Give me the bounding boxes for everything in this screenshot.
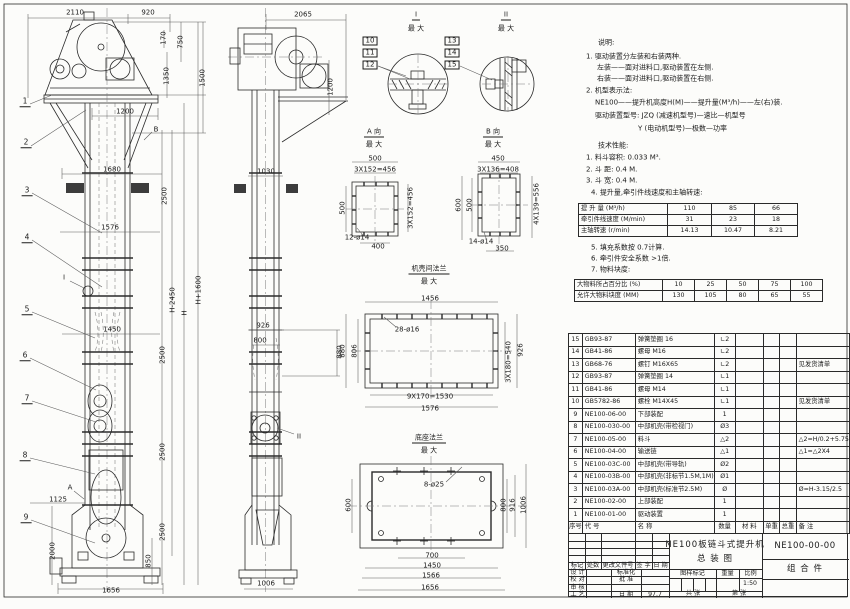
table-cell xyxy=(763,371,779,384)
table-cell xyxy=(796,409,849,422)
table-cell xyxy=(780,434,796,447)
table-cell: 提 升 量 (M³/h) xyxy=(579,204,668,215)
table-cell: Ø xyxy=(714,484,735,497)
table-cell xyxy=(735,371,763,384)
table-cell: Ø3 xyxy=(714,421,735,434)
dim-label: 806 xyxy=(352,344,359,357)
table-cell xyxy=(780,496,796,509)
dim-label: 1456 xyxy=(421,296,439,303)
table-row: 13GB68-76螺钉 M16X65∟2见发货清单 xyxy=(569,359,850,372)
table-cell: 8.21 xyxy=(755,226,798,237)
title-block-cell: 校 对 xyxy=(570,577,584,583)
note-line: 2. 机型表示法: xyxy=(586,88,632,95)
dim-label: 3X152=456 xyxy=(354,167,396,174)
table-cell xyxy=(735,509,763,522)
title-block-line xyxy=(762,579,849,580)
table-cell xyxy=(780,346,796,359)
title-block-cell: 处数 xyxy=(587,562,599,568)
table-cell: NE100-03B-00 xyxy=(582,471,635,484)
balloon-2: 2 xyxy=(21,138,32,148)
balloon-11: 11 xyxy=(363,49,378,58)
dim-label: 1450 xyxy=(103,327,121,334)
note-line: 1. 料斗容积: 0.033 M³. xyxy=(586,155,661,162)
table-cell: NE100-01-00 xyxy=(582,509,635,522)
table-cell: 主轴转速 (r/min) xyxy=(579,226,668,237)
table-cell: 80 xyxy=(727,291,759,302)
dim-label: 1200 xyxy=(328,78,335,96)
title-block-line xyxy=(669,534,670,598)
table-cell xyxy=(780,334,796,347)
table-row: 9NE100-06-00下部装配1 xyxy=(569,409,850,422)
table-cell xyxy=(780,471,796,484)
dim-label: 14-ø14 xyxy=(469,239,494,246)
detail-I xyxy=(378,54,448,114)
dim-label: 1030 xyxy=(257,169,275,176)
table-cell: 8 xyxy=(569,421,583,434)
table-cell xyxy=(763,484,779,497)
dim-label: 1200 xyxy=(116,109,134,116)
dim-label: 926 xyxy=(256,323,269,330)
dim-label: 1656 xyxy=(421,585,439,592)
table-cell xyxy=(735,384,763,397)
table-cell: 单重 xyxy=(763,521,779,534)
table-row: 14GB41-86螺母 M16∟2 xyxy=(569,346,850,359)
table-cell: 螺母 M14 xyxy=(635,384,714,397)
title-block-line xyxy=(611,569,612,598)
table-cell: Ø=H-3.15/2.5 xyxy=(796,484,849,497)
table-row: 15GB93-87弹簧垫圈 16∟2 xyxy=(569,334,850,347)
table-row: 主轴转速 (r/min)14.1310.478.21 xyxy=(579,226,798,237)
dim-label: 850 xyxy=(146,554,153,567)
balloon-4: 4 xyxy=(22,233,33,243)
table-cell: 驱动装置 xyxy=(635,509,714,522)
table-cell xyxy=(763,434,779,447)
lump-size-table: 大物料所占百分比 (%)10255075100允许大物料块度 (MM)13010… xyxy=(574,279,823,302)
dim-label: 450 xyxy=(491,156,504,163)
table-cell: 65 xyxy=(759,291,791,302)
table-cell: NE100-04-00 xyxy=(582,446,635,459)
dim-label: 12-ø14 xyxy=(345,235,370,242)
note-line: 右装——面对进料口,驱动装置在右侧. xyxy=(597,76,713,83)
table-cell: 输送链 xyxy=(635,446,714,459)
balloon-15: 15 xyxy=(445,61,460,70)
table-row: 4NE100-03B-00中部机壳(非标节1.5M,1M)Ø1 xyxy=(569,471,850,484)
table-cell: 中部机壳(带导轨) xyxy=(635,459,714,472)
part-type: 组 合 件 xyxy=(787,565,823,574)
table-row: 8NE100-030-00中部机壳(带检视门)Ø3 xyxy=(569,421,850,434)
table-cell: 11 xyxy=(569,384,583,397)
dim-label: 750 xyxy=(178,35,185,48)
table-cell xyxy=(763,471,779,484)
dim-label: 机壳间法兰 xyxy=(409,266,450,275)
table-cell xyxy=(763,446,779,459)
table-cell: GB41-86 xyxy=(582,346,635,359)
dim-label: H xyxy=(182,310,189,315)
table-cell xyxy=(796,421,849,434)
dim-label: 916 xyxy=(510,498,517,511)
table-cell: 14 xyxy=(569,346,583,359)
table-cell: 18 xyxy=(755,215,798,226)
table-cell: 1 xyxy=(714,496,735,509)
table-cell xyxy=(735,421,763,434)
table-cell xyxy=(763,496,779,509)
note-line: 3. 斗 宽: 0.4 M. xyxy=(586,178,637,185)
note-line: 说明: xyxy=(598,40,614,47)
dim-label: I xyxy=(63,275,65,282)
table-cell: 105 xyxy=(695,291,727,302)
table-cell: GB5782-86 xyxy=(582,396,635,409)
balloon-10: 10 xyxy=(363,37,378,46)
table-cell xyxy=(780,359,796,372)
table-cell xyxy=(735,446,763,459)
dim-label: 3X136=408 xyxy=(477,167,519,174)
table-cell xyxy=(780,484,796,497)
balloon-7: 7 xyxy=(22,394,33,404)
table-cell: 110 xyxy=(668,204,712,215)
drawing-name: 总 装 图 xyxy=(697,555,733,564)
table-row: 11GB41-86螺母 M14∟1 xyxy=(569,384,850,397)
title-block-cell: 工 艺 xyxy=(570,591,584,597)
dim-label: 2500 xyxy=(160,443,167,461)
table-row: 提 升 量 (M³/h)1108566 xyxy=(579,204,798,215)
note-line: 7. 物料块度: xyxy=(591,267,630,274)
table-cell: 9 xyxy=(569,409,583,422)
table-row: 12GB93-87弹簧垫圈 14∟1 xyxy=(569,371,850,384)
note-line: 左装——面对进料口,驱动装置在左侧. xyxy=(597,65,713,72)
dim-label: 500 xyxy=(340,201,347,214)
table-cell: 85 xyxy=(712,204,755,215)
dim-label: 28-ø16 xyxy=(395,327,420,334)
table-cell: △1 xyxy=(714,446,735,459)
dim-label: 1656 xyxy=(102,588,120,595)
balloon-13: 13 xyxy=(445,37,460,46)
table-cell: 10 xyxy=(569,396,583,409)
title-block-line xyxy=(762,534,763,598)
table-cell xyxy=(780,446,796,459)
table-cell xyxy=(780,459,796,472)
title-block-cell: 设 计 xyxy=(570,569,584,575)
title-block-cell: 比例 xyxy=(744,570,756,576)
title-block-line xyxy=(739,569,740,591)
table-cell: GB41-86 xyxy=(582,384,635,397)
table-cell xyxy=(735,434,763,447)
table-cell: 螺母 M16 xyxy=(635,346,714,359)
table-cell: 牵引件线速度 (M/min) xyxy=(579,215,668,226)
table-cell: 下部装配 xyxy=(635,409,714,422)
title-block-cell: 图样标记 xyxy=(680,570,705,576)
table-cell: 上部装配 xyxy=(635,496,714,509)
title-block-line xyxy=(693,578,694,591)
table-cell xyxy=(763,509,779,522)
table-cell xyxy=(796,496,849,509)
dim-label: 1450 xyxy=(423,563,441,570)
dim-label: 1006 xyxy=(521,496,528,514)
table-cell: 1 xyxy=(569,509,583,522)
dim-label: 880 xyxy=(340,344,347,357)
title-block-cell: 日 期 xyxy=(653,562,667,568)
table-cell xyxy=(796,471,849,484)
table-cell: 螺钉 M16X65 xyxy=(635,359,714,372)
dim-label: 底座法兰 xyxy=(412,435,446,444)
table-cell xyxy=(796,334,849,347)
table-cell xyxy=(763,409,779,422)
drawing-sheet: 2110920170750135015001200B168025001576H+… xyxy=(0,0,850,609)
table-cell: ∟1 xyxy=(714,396,735,409)
dim-label: 9X170=1530 xyxy=(407,394,453,401)
note-line: 5. 填充系数按 0.7计算. xyxy=(591,245,665,252)
note-line: 驱动装置型号: JZQ (减速机型号)—速比—机型号 xyxy=(595,113,746,120)
table-cell: 6 xyxy=(569,446,583,459)
table-cell: NE100-03C-00 xyxy=(582,459,635,472)
table-cell: 2 xyxy=(569,496,583,509)
base-flange xyxy=(348,456,530,590)
dim-label: 1576 xyxy=(421,406,439,413)
dim-label: 350 xyxy=(495,246,508,253)
table-cell: 4 xyxy=(569,471,583,484)
table-cell: 弹簧垫圈 14 xyxy=(635,371,714,384)
scale-value: 1:50 xyxy=(743,581,757,587)
balloon-1: 1 xyxy=(20,97,31,107)
table-cell xyxy=(763,334,779,347)
table-cell: 料斗 xyxy=(635,434,714,447)
table-cell: 中部机壳(标准节2.5M) xyxy=(635,484,714,497)
table-cell: 数量 xyxy=(714,521,735,534)
balloon-5: 5 xyxy=(22,305,33,315)
dim-label: 800 xyxy=(501,498,508,511)
table-cell xyxy=(796,459,849,472)
table-cell: 13 xyxy=(569,359,583,372)
dim-label: 1006 xyxy=(257,581,275,588)
table-cell: 1 xyxy=(714,409,735,422)
table-row: 6NE100-04-00输送链△1△1=△2X4 xyxy=(569,446,850,459)
detail-II xyxy=(460,56,534,112)
table-cell xyxy=(780,509,796,522)
balloon-14: 14 xyxy=(445,49,460,58)
title-block-cell: 日 期 xyxy=(619,591,633,597)
casing-flange xyxy=(346,300,517,407)
dim-label: 1350 xyxy=(164,67,171,85)
table-cell xyxy=(780,409,796,422)
dim-label: 2500 xyxy=(162,187,169,205)
table-cell xyxy=(763,359,779,372)
note-line: NE100——提升机高度H(M)——提升量(M³/h)——左(右)装. xyxy=(595,100,783,107)
table-cell: 12 xyxy=(569,371,583,384)
table-cell xyxy=(763,459,779,472)
table-cell: Ø1 xyxy=(714,471,735,484)
table-cell: ∟1 xyxy=(714,384,735,397)
a-view xyxy=(346,162,408,243)
dim-label: 500 xyxy=(368,156,381,163)
table-cell: 大物料所占百分比 (%) xyxy=(575,280,663,291)
dim-label: 700 xyxy=(425,553,438,560)
dim-label: 最 大 xyxy=(366,142,382,149)
dim-label: 最 大 xyxy=(485,142,501,149)
title-block-cell: 97.7 xyxy=(648,591,662,597)
dim-label: 926 xyxy=(518,343,525,356)
table-cell: 31 xyxy=(668,215,712,226)
dim-label: 2000 xyxy=(50,542,57,560)
table-cell: △1=△2X4 xyxy=(796,446,849,459)
table-cell xyxy=(735,359,763,372)
table-row: 10GB5782-86螺栓 M14X45∟1见发货清单 xyxy=(569,396,850,409)
table-cell xyxy=(780,371,796,384)
table-cell xyxy=(763,396,779,409)
table-cell: NE100-05-00 xyxy=(582,434,635,447)
table-cell xyxy=(780,384,796,397)
title-block-line xyxy=(705,578,706,591)
dim-label: 3X152=456 xyxy=(408,187,415,229)
table-cell: 备 注 xyxy=(796,521,849,534)
dim-label: 2110 xyxy=(66,10,84,17)
dim-label: A xyxy=(68,485,73,492)
title-block-cell: 重量 xyxy=(721,570,733,576)
table-cell xyxy=(735,396,763,409)
table-cell: NE100-03A-00 xyxy=(582,484,635,497)
table-cell: 130 xyxy=(663,291,695,302)
title-block-cell: 签 字 xyxy=(636,562,650,568)
front-view xyxy=(28,8,206,594)
table-cell: △2 xyxy=(714,434,735,447)
table-cell xyxy=(796,346,849,359)
table-cell: 15 xyxy=(569,334,583,347)
table-cell: GB68-76 xyxy=(582,359,635,372)
table-cell: Ø2 xyxy=(714,459,735,472)
table-cell: 螺栓 M14X45 xyxy=(635,396,714,409)
table-cell: 10 xyxy=(663,280,695,291)
table-cell: 见发货清单 xyxy=(796,396,849,409)
dim-label: 1566 xyxy=(422,573,440,580)
table-cell xyxy=(735,409,763,422)
dim-label: 1125 xyxy=(49,497,67,504)
table-cell xyxy=(735,471,763,484)
product-title: NE100板链斗式提升机 xyxy=(665,541,764,550)
balloon-8: 8 xyxy=(20,451,31,461)
balloon-9: 9 xyxy=(21,513,32,523)
table-cell: 25 xyxy=(695,280,727,291)
table-row: 允许大物料块度 (MM)130105806555 xyxy=(575,291,823,302)
table-cell: 中部机壳(带检视门) xyxy=(635,421,714,434)
title-block-line xyxy=(762,559,849,560)
note-line: 6. 牵引件安全系数 >1倍. xyxy=(591,256,671,263)
note-line: 技术性能: xyxy=(598,143,628,150)
table-cell: 1 xyxy=(714,509,735,522)
table-cell xyxy=(763,421,779,434)
table-cell: ∟2 xyxy=(714,359,735,372)
dim-label: 2500 xyxy=(160,346,167,364)
table-cell xyxy=(735,334,763,347)
table-row: 2NE100-02-00上部装配1 xyxy=(569,496,850,509)
table-row: 3NE100-03A-00中部机壳(标准节2.5M)ØØ=H-3.15/2.5 xyxy=(569,484,850,497)
table-row: 牵引件线速度 (M/min)312318 xyxy=(579,215,798,226)
table-cell: GB93-87 xyxy=(582,334,635,347)
dim-label: H+1600 xyxy=(196,276,203,305)
table-cell: 弹簧垫圈 16 xyxy=(635,334,714,347)
note-line: Y (电动机型号)—极数—功率 xyxy=(638,126,727,133)
balloon-6: 6 xyxy=(20,351,31,361)
table-cell xyxy=(796,371,849,384)
dim-label: B 向 xyxy=(483,129,503,138)
table-cell: NE100-02-00 xyxy=(582,496,635,509)
drawing-number: NE100-00-00 xyxy=(774,542,835,551)
title-block-line xyxy=(716,569,717,598)
dim-label: A 向 xyxy=(364,129,384,138)
table-cell: 序号 xyxy=(569,521,583,534)
table-cell xyxy=(735,459,763,472)
title-block-cell: 批 准 xyxy=(619,577,633,583)
dim-label: I xyxy=(412,12,420,21)
table-cell: 见发货清单 xyxy=(796,359,849,372)
dim-label: 500 xyxy=(467,198,474,211)
table-cell xyxy=(763,346,779,359)
dim-label: H-2450 xyxy=(170,287,177,313)
dim-label: 400 xyxy=(371,244,384,251)
dim-label: 600 xyxy=(456,198,463,211)
title-block: NE100板链斗式提升机 总 装 图 NE100-00-00 组 合 件 1:5… xyxy=(568,533,848,597)
dim-label: 最 大 xyxy=(498,26,514,33)
dim-label: 2065 xyxy=(294,12,312,19)
dim-label: II xyxy=(501,12,511,21)
dim-label: 最 大 xyxy=(421,279,437,286)
dim-label: 最 大 xyxy=(408,26,424,33)
table-row: 7NE100-05-00料斗△2△2=H/0.2+5.75 xyxy=(569,434,850,447)
table-cell: ∟2 xyxy=(714,346,735,359)
table-cell: 75 xyxy=(759,280,791,291)
balloon-12: 12 xyxy=(363,61,378,70)
table-cell: 允许大物料块度 (MM) xyxy=(575,291,663,302)
table-row: 序号代 号名 称数量材 料单重总重备 注 xyxy=(569,521,850,534)
table-cell xyxy=(796,384,849,397)
table-cell: △2=H/0.2+5.75 xyxy=(796,434,849,447)
table-cell: 中部机壳(非标节1.5M,1M) xyxy=(635,471,714,484)
dim-label: 1500 xyxy=(200,69,207,87)
table-row: 5NE100-03C-00中部机壳(带导轨)Ø2 xyxy=(569,459,850,472)
dim-label: B xyxy=(154,127,159,134)
title-block-line xyxy=(569,548,669,549)
note-line: 4. 提升量,牵引件线速度和主轴转速: xyxy=(591,190,703,197)
title-block-cell: 标准化 xyxy=(617,569,636,575)
table-cell: 材 料 xyxy=(735,521,763,534)
title-block-line xyxy=(586,569,587,598)
balloon-3: 3 xyxy=(22,186,33,196)
table-cell: 10.47 xyxy=(712,226,755,237)
dim-label: 8-ø25 xyxy=(424,482,444,489)
table-cell: 总重 xyxy=(780,521,796,534)
table-cell xyxy=(780,396,796,409)
table-row: 大物料所占百分比 (%)10255075100 xyxy=(575,280,823,291)
table-cell: 50 xyxy=(727,280,759,291)
dim-label: 920 xyxy=(141,10,154,17)
table-cell: 3 xyxy=(569,484,583,497)
table-cell: 5 xyxy=(569,459,583,472)
dim-label: 2500 xyxy=(160,523,167,541)
dim-label: 170 xyxy=(161,31,168,44)
table-cell: 名 称 xyxy=(635,521,714,534)
table-cell xyxy=(735,496,763,509)
table-cell: 14.13 xyxy=(668,226,712,237)
table-cell: 代 号 xyxy=(582,521,635,534)
dim-label: 1576 xyxy=(101,225,119,232)
dim-label: 1680 xyxy=(103,167,121,174)
table-cell: 55 xyxy=(791,291,823,302)
table-cell xyxy=(796,509,849,522)
table-cell xyxy=(735,346,763,359)
note-line: 2. 斗 距: 0.4 M. xyxy=(586,167,637,174)
dim-label: 4X139=556 xyxy=(534,183,541,225)
table-cell: 66 xyxy=(755,204,798,215)
table-cell: ∟2 xyxy=(714,334,735,347)
title-block-line xyxy=(641,569,642,598)
table-cell: GB93-87 xyxy=(582,371,635,384)
